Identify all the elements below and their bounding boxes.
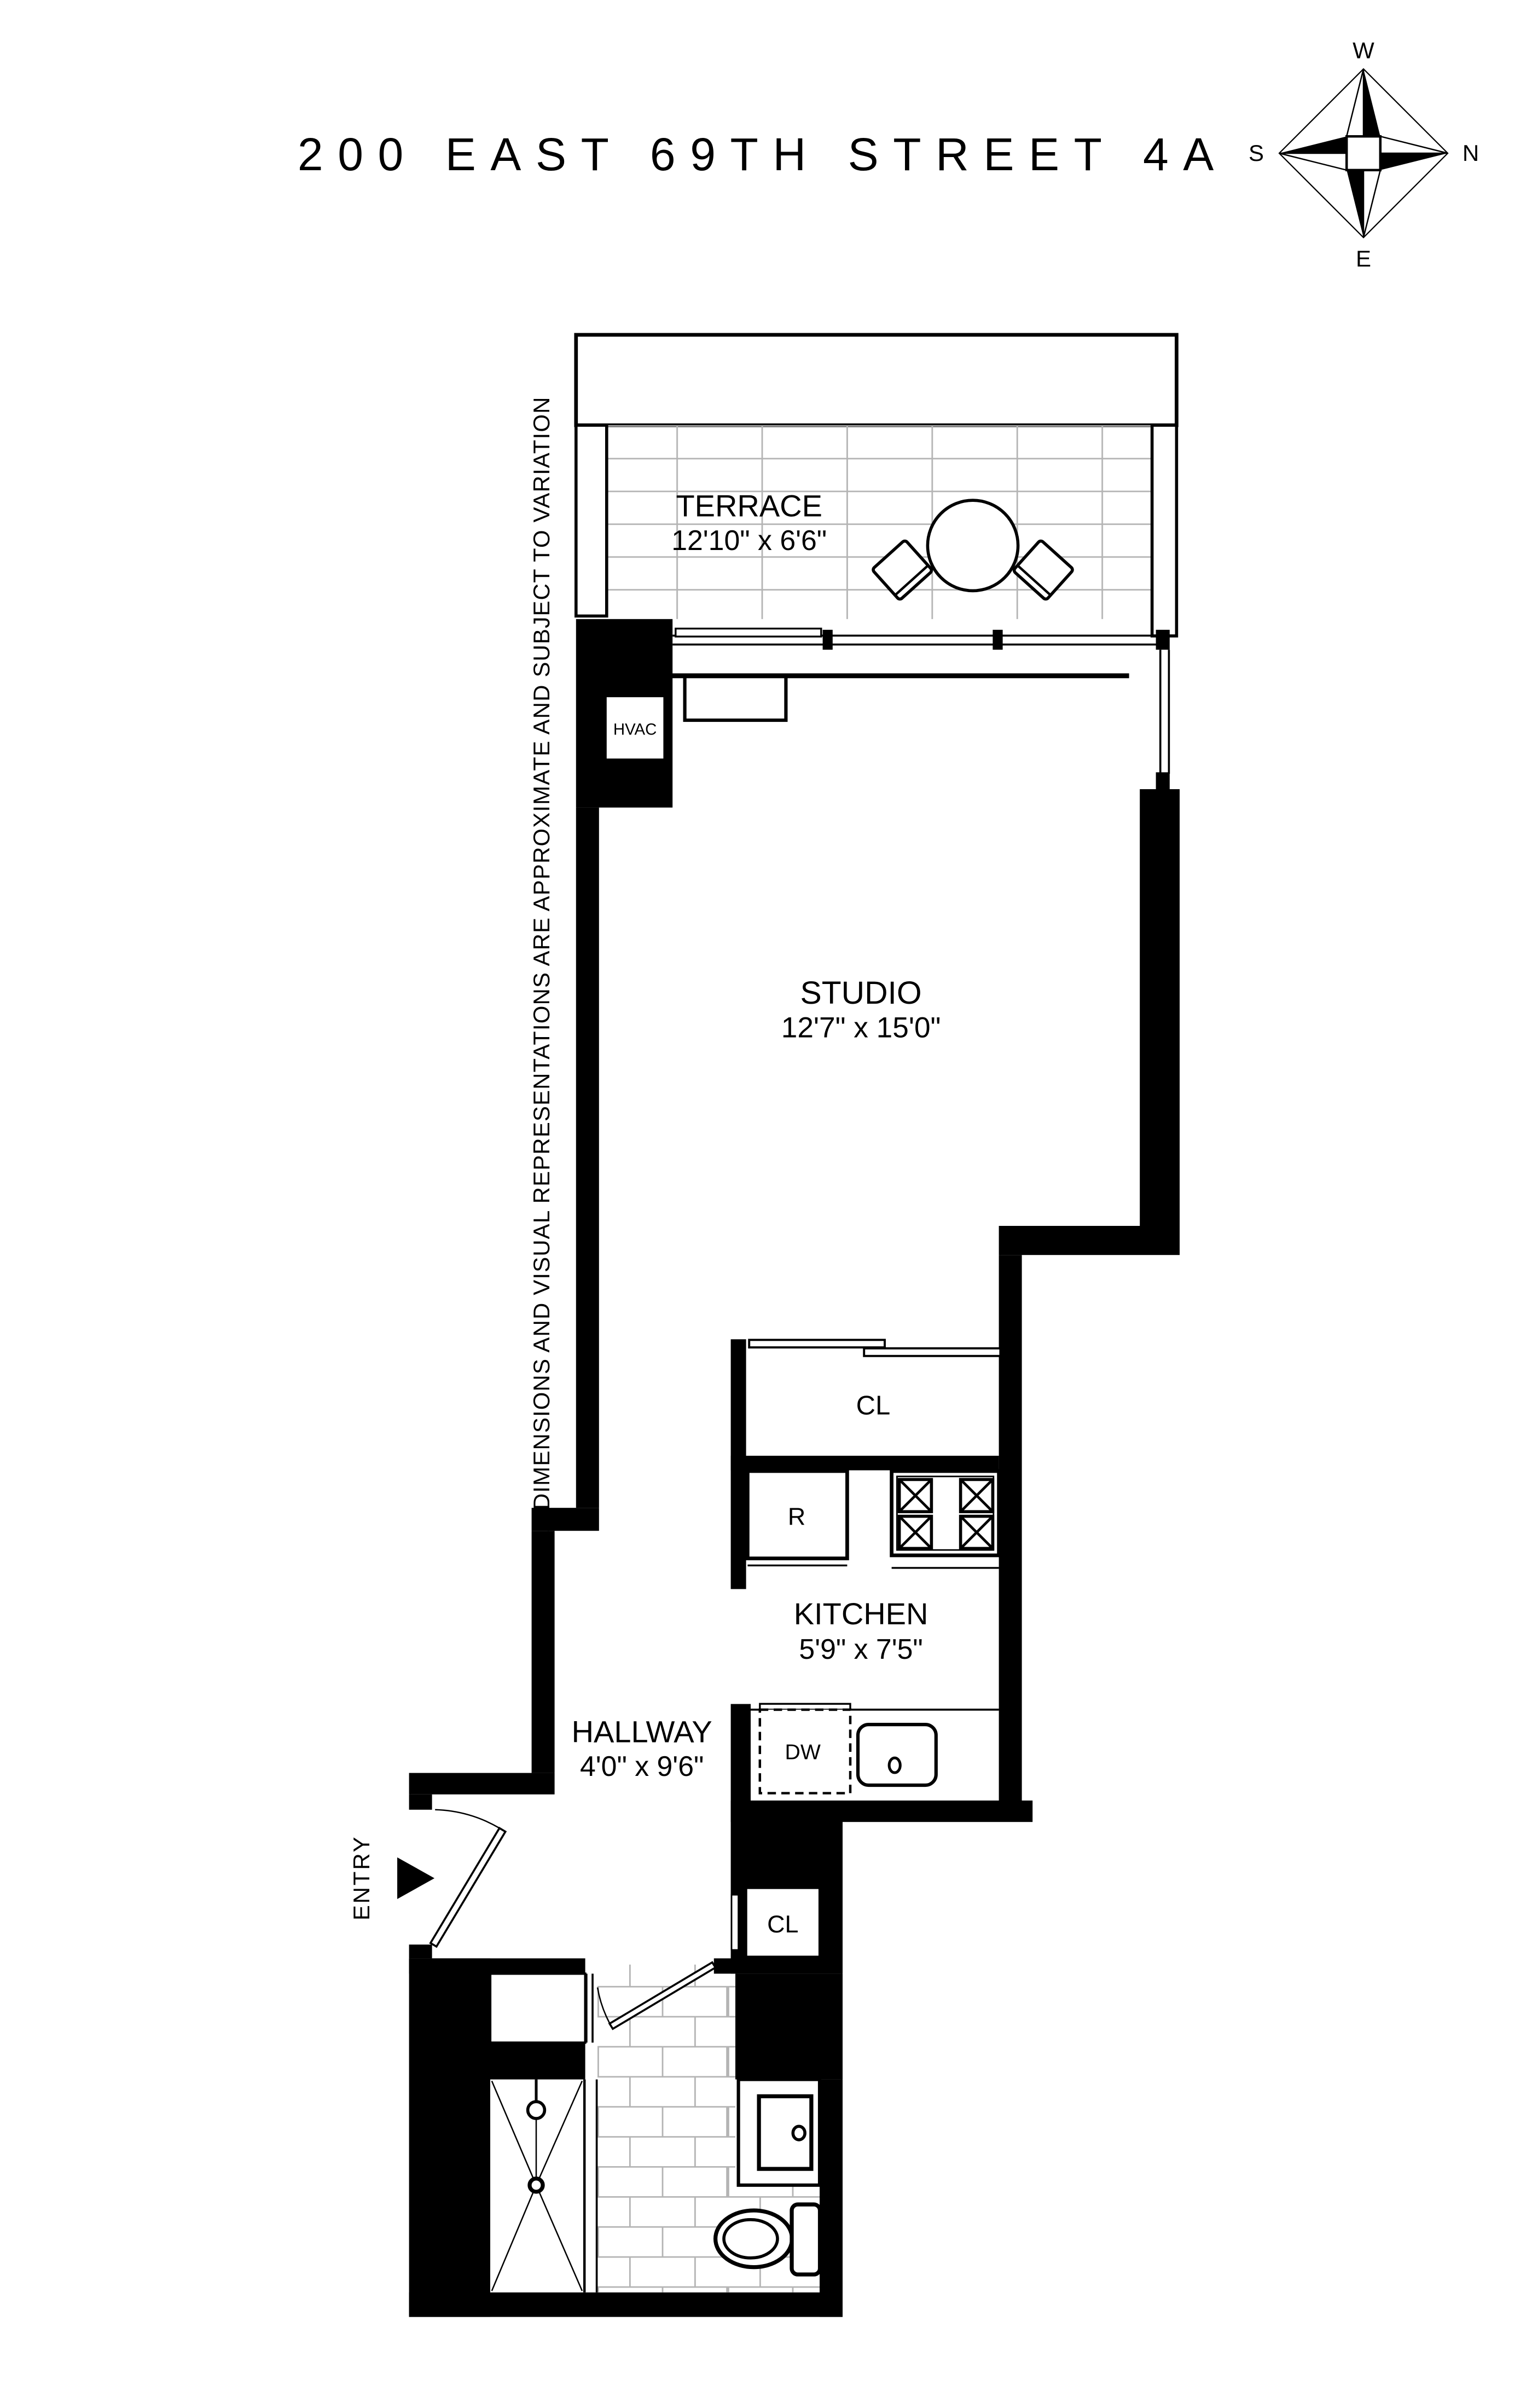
sliding-door [749, 1340, 885, 1347]
compass-s-label: S [1249, 140, 1264, 166]
floor-plan-page: 200 EAST 69TH STREET 4A W N E S TER [0, 0, 1532, 2408]
shower-icon [492, 2080, 597, 2293]
shower-head-icon [528, 2102, 545, 2118]
terrace: TERRACE 12'10" x 6'6" [576, 335, 1177, 636]
dishwasher: DW [760, 1704, 850, 1793]
vestibule-closet [490, 1973, 585, 2042]
entry-label: ENTRY [349, 1836, 374, 1921]
disclaimer-text: ALL DIMENSIONS AND VISUAL REPRESENTATION… [529, 396, 554, 1559]
shower-drain-icon [530, 2179, 543, 2192]
terrace-label: TERRACE [676, 489, 822, 523]
hallway-dims: 4'0" x 9'6" [580, 1750, 704, 1782]
refrigerator-label: R [788, 1503, 805, 1530]
terrace-dims: 12'10" x 6'6" [671, 524, 827, 556]
closet-lower-label: CL [767, 1911, 798, 1938]
walls [409, 619, 1180, 2317]
window-sill [676, 629, 821, 637]
entry-arrow-icon [397, 1857, 434, 1899]
compass-rose-icon: W N E S [1249, 37, 1479, 271]
kitchen-sink-icon [858, 1724, 936, 1785]
compass-e-label: E [1356, 246, 1371, 271]
closet-upper: CL [749, 1340, 1000, 1420]
hvac-label: HVAC [613, 721, 657, 739]
studio-label: STUDIO [800, 975, 922, 1011]
entry-door-swing-icon [435, 1810, 500, 1828]
terrace-left-wall [576, 425, 607, 616]
ptac-unit [685, 676, 786, 720]
kitchen-label: KITCHEN [794, 1596, 929, 1631]
dishwasher-label: DW [785, 1740, 821, 1764]
kitchen: R KITCHEN 5'9" x 7'5" [747, 1471, 999, 1793]
floor-plan: 200 EAST 69TH STREET 4A W N E S TER [0, 0, 1532, 2408]
closet-upper-label: CL [856, 1391, 891, 1420]
terrace-right-wall [1152, 425, 1177, 636]
page-title: 200 EAST 69TH STREET 4A [298, 129, 1228, 180]
round-table-icon [927, 500, 1018, 591]
entry: ENTRY [349, 1810, 506, 1947]
hallway-label: HALLWAY [572, 1715, 712, 1749]
compass-n-label: N [1463, 140, 1479, 166]
refrigerator: R [747, 1471, 847, 1559]
compass-w-label: W [1353, 37, 1374, 63]
terrace-parapet [576, 335, 1177, 425]
studio-dims: 12'7" x 15'0" [781, 1012, 941, 1044]
stove-burners-icon [892, 1471, 999, 1555]
vanity-sink-icon [739, 2080, 820, 2185]
sliding-door [864, 1348, 1000, 1356]
closet-lower-door-pocket [732, 1895, 739, 1950]
entry-door-leaf [431, 1828, 506, 1946]
kitchen-dims: 5'9" x 7'5" [799, 1633, 922, 1665]
hvac-unit: HVAC [605, 696, 665, 760]
